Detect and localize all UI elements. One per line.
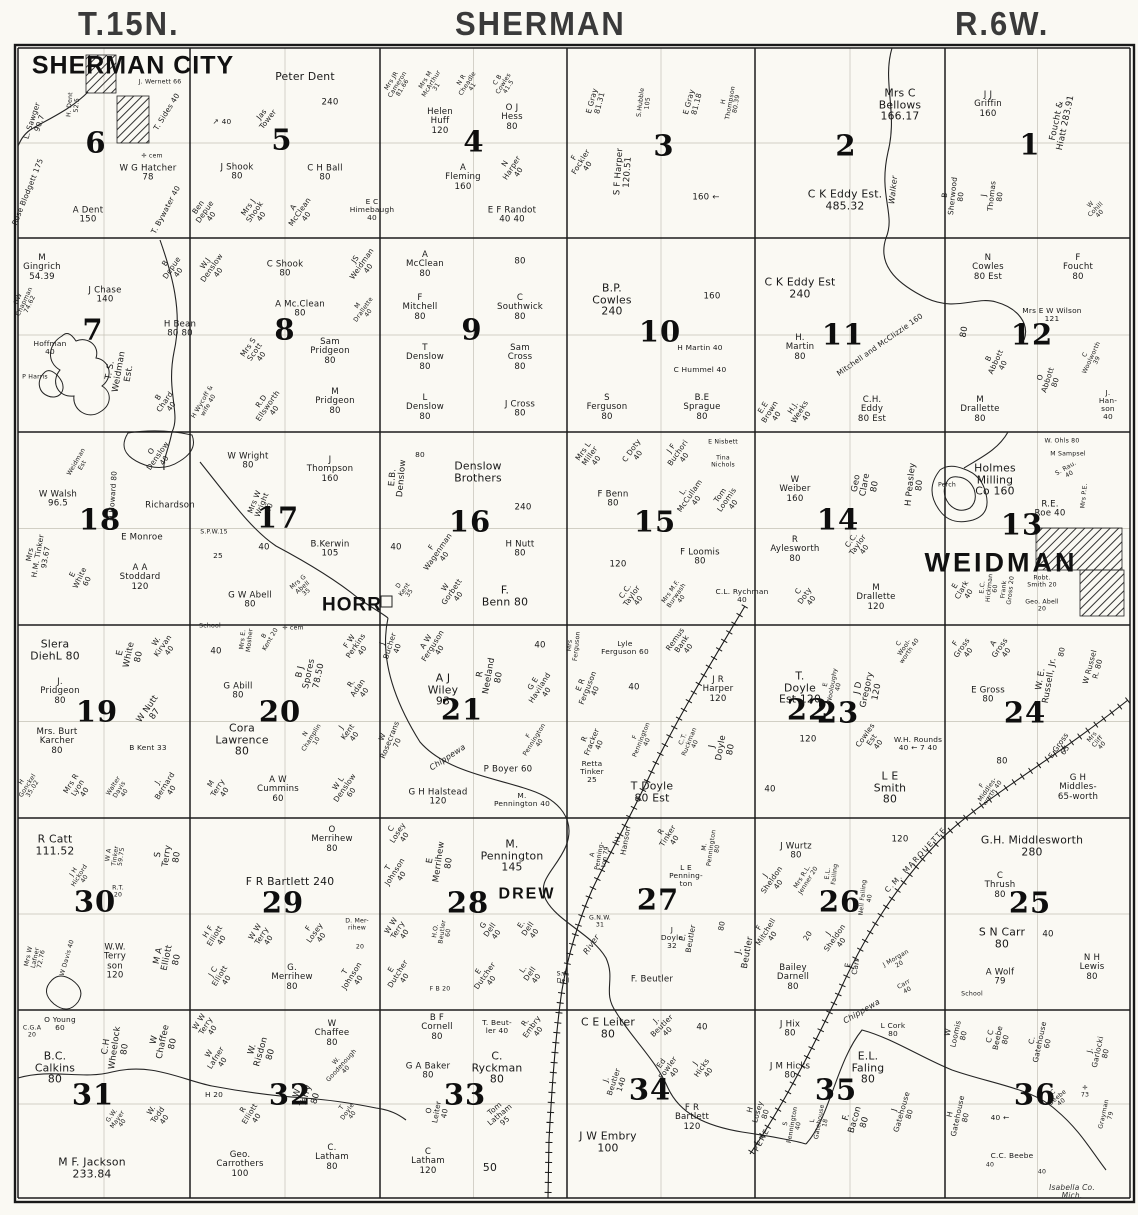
railroad-drew-line	[548, 606, 745, 1198]
horr-building	[381, 596, 392, 607]
railroad-marquette-ticks	[750, 700, 1128, 1154]
railroad-drew-ticks	[548, 606, 745, 1198]
perch-lake	[932, 466, 987, 521]
creek-section31	[18, 1069, 406, 1120]
lake-section7	[50, 333, 109, 414]
railroads	[548, 606, 1128, 1198]
creek-section13	[964, 432, 1008, 468]
plat-map-page: T.15N. SHERMAN R.6W.	[0, 0, 1138, 1215]
railroad-marquette-line	[750, 700, 1128, 1154]
lake-section18	[124, 431, 194, 468]
river-chippewa-lower	[806, 1030, 1106, 1170]
map-linework	[0, 0, 1138, 1215]
creek-section17	[200, 462, 388, 618]
walker-creek	[884, 48, 1026, 340]
perch-lake-contour	[944, 477, 975, 510]
sherman-city-plat-hatch	[86, 55, 149, 143]
creek-sherman	[18, 92, 88, 146]
lake-section7-small	[39, 371, 63, 397]
creek-section7	[160, 240, 177, 470]
lakes	[39, 333, 987, 1009]
map-outer-border	[15, 45, 1134, 1202]
map-canvas: 6L. Sawger 90.7Rose Blodgett 175H. Dent …	[0, 0, 1138, 1215]
lake-section30	[46, 976, 80, 1009]
weidman-plat-hatch	[1036, 528, 1124, 616]
section-grid	[18, 48, 1130, 1198]
rivers	[18, 48, 1106, 1170]
